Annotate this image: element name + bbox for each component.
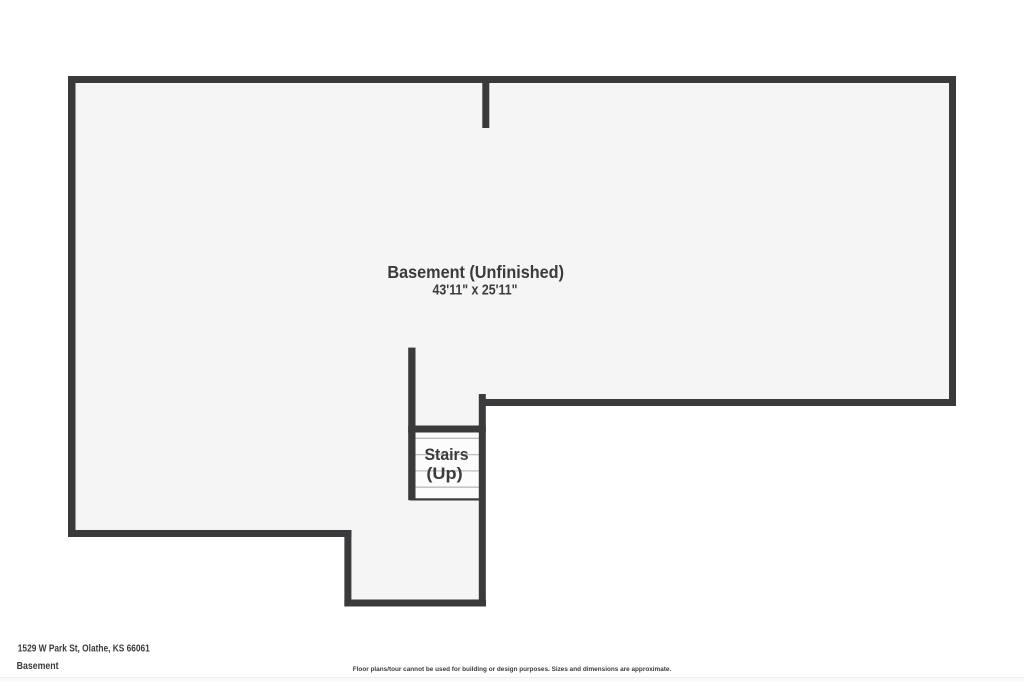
svg-text:Stairs: Stairs bbox=[425, 446, 469, 464]
svg-text:Floor plans/tour cannot be use: Floor plans/tour cannot be used for buil… bbox=[353, 666, 672, 673]
svg-text:(Up): (Up) bbox=[426, 465, 462, 483]
svg-text:Basement (Unfinished): Basement (Unfinished) bbox=[387, 262, 564, 282]
svg-text:1529 W Park St, Olathe, KS 660: 1529 W Park St, Olathe, KS 66061 bbox=[18, 643, 150, 654]
svg-text:Basement: Basement bbox=[17, 661, 60, 672]
svg-text:43'11" x 25'11": 43'11" x 25'11" bbox=[433, 283, 518, 299]
